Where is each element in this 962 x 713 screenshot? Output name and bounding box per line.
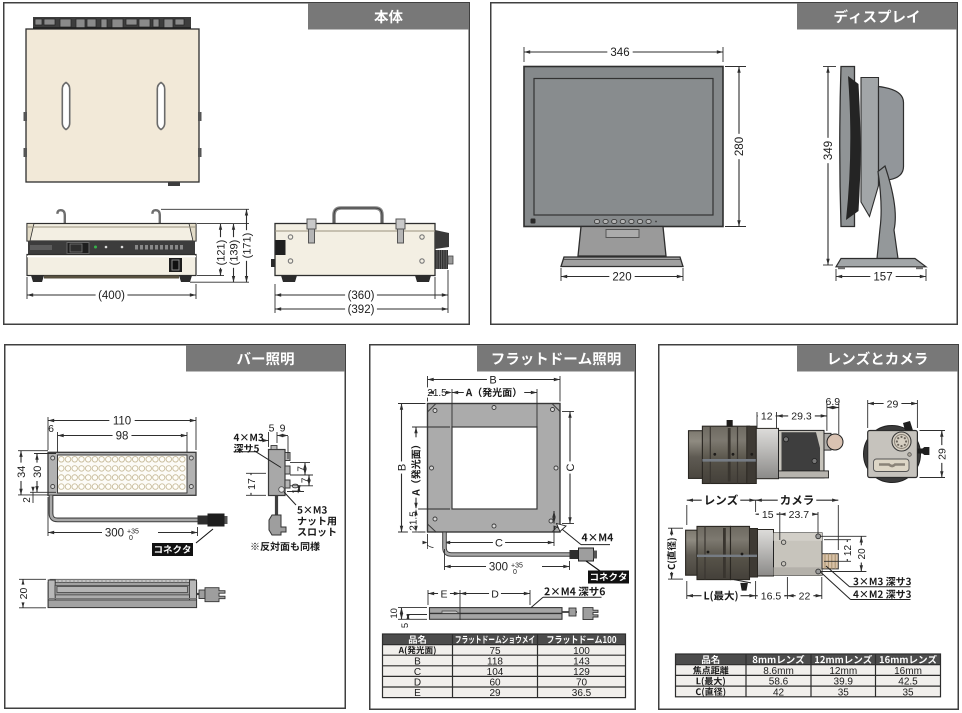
svg-text:6.9: 6.9 xyxy=(825,396,840,408)
svg-text:17: 17 xyxy=(246,478,258,490)
svg-text:B: B xyxy=(396,464,408,471)
svg-text:5: 5 xyxy=(400,623,411,628)
svg-text:12: 12 xyxy=(761,411,773,423)
svg-text:2: 2 xyxy=(22,497,33,503)
svg-text:20: 20 xyxy=(857,548,868,560)
svg-text:7: 7 xyxy=(425,544,435,549)
svg-text:20: 20 xyxy=(18,588,30,600)
svg-text:300: 300 xyxy=(105,528,124,540)
svg-text:D: D xyxy=(491,588,499,600)
svg-text:0: 0 xyxy=(129,535,133,542)
svg-text:B: B xyxy=(489,374,496,386)
svg-text:7: 7 xyxy=(297,466,308,472)
svg-text:98: 98 xyxy=(116,431,129,443)
svg-text:C: C xyxy=(495,537,503,549)
svg-text:C: C xyxy=(565,463,577,471)
svg-text:29: 29 xyxy=(937,448,949,460)
svg-text:10: 10 xyxy=(389,608,400,619)
svg-text:7: 7 xyxy=(301,477,312,483)
svg-text:10: 10 xyxy=(290,483,301,494)
svg-text:280: 280 xyxy=(734,137,746,156)
svg-text:(392): (392) xyxy=(348,304,375,316)
svg-text:346: 346 xyxy=(610,47,629,59)
svg-text:(121): (121) xyxy=(215,240,227,266)
svg-text:5: 5 xyxy=(269,422,275,434)
svg-text:22: 22 xyxy=(799,590,811,602)
svg-text:(400): (400) xyxy=(98,290,125,302)
svg-text:0: 0 xyxy=(513,569,517,576)
svg-text:6: 6 xyxy=(48,423,54,435)
svg-text:29: 29 xyxy=(887,398,899,410)
svg-text:(171): (171) xyxy=(241,233,253,259)
svg-text:349: 349 xyxy=(823,141,835,160)
svg-text:9: 9 xyxy=(280,422,286,434)
svg-text:21.5: 21.5 xyxy=(427,388,447,399)
svg-text:30: 30 xyxy=(32,466,44,478)
svg-text:300: 300 xyxy=(489,562,508,574)
svg-text:E: E xyxy=(440,588,447,600)
svg-text:110: 110 xyxy=(113,416,131,428)
svg-text:16.5: 16.5 xyxy=(761,590,782,602)
svg-text:29.3: 29.3 xyxy=(791,411,812,423)
svg-text:(360): (360) xyxy=(348,290,375,302)
svg-text:12: 12 xyxy=(843,545,854,557)
svg-text:15: 15 xyxy=(762,509,774,521)
svg-text:21.5: 21.5 xyxy=(409,511,420,531)
svg-text:23.7: 23.7 xyxy=(789,509,810,521)
svg-text:(139): (139) xyxy=(228,240,240,266)
svg-text:220: 220 xyxy=(612,272,631,284)
svg-text:157: 157 xyxy=(873,272,892,284)
svg-text:34: 34 xyxy=(16,466,28,478)
